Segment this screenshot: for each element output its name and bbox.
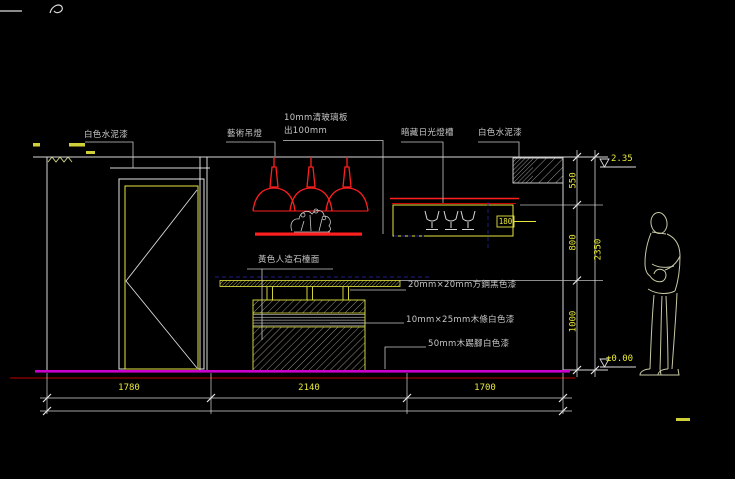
zigzag-mark: [48, 157, 72, 162]
countertop-hatch: [220, 281, 400, 287]
ornament-sketch: [291, 209, 331, 232]
floor-line: [35, 370, 570, 373]
dim-h-1780: 1780: [109, 384, 149, 393]
label-skirting: 50mm木踢腳白色漆: [428, 340, 509, 350]
drawing-geometry: [0, 0, 735, 479]
bottom-right-dash: [676, 418, 690, 421]
dim-v-550: 550: [570, 166, 579, 196]
back-bar-shelf: [393, 205, 536, 236]
dim-h-2140: 2140: [289, 384, 329, 393]
dim-trough-180: 180: [497, 218, 514, 226]
door: [119, 179, 204, 369]
beam-section-hatch: [513, 158, 563, 183]
counter-base-hatch: [254, 327, 365, 371]
counter-legs: [267, 287, 349, 300]
label-countertop: 黃色人造石檯面: [258, 256, 320, 266]
bar-counter: [220, 281, 400, 371]
glass-shelf-red-bar: [255, 233, 362, 236]
construction-lines: [215, 202, 488, 277]
dim-h-1700: 1700: [465, 384, 505, 393]
label-light-trough: 暗藏日光燈槽: [401, 129, 454, 139]
label-wood-strip: 10mm×25mm木條白色漆: [406, 316, 515, 326]
cad-canvas[interactable]: 白色水泥漆 藝術吊燈 10mm清玻璃板 出100mm 暗藏日光燈槽 白色水泥漆 …: [0, 0, 735, 479]
pendant-lamp: [253, 157, 295, 211]
label-glass-shelf-2: 出100mm: [284, 127, 327, 137]
wine-glass: [461, 211, 475, 230]
light-trough-red-lines: [390, 199, 519, 204]
wine-glass: [425, 211, 439, 230]
pendant-lamp: [290, 157, 332, 211]
label-glass-shelf-1: 10mm清玻璃板: [284, 114, 348, 124]
dim-v-800: 800: [570, 228, 579, 258]
label-wall-paint-left: 白色水泥漆: [84, 131, 128, 141]
counter-strip-band: [254, 313, 365, 327]
dim-v-total: 2350: [595, 232, 604, 268]
person-figure: [640, 211, 680, 375]
pendant-lamps: [253, 157, 368, 211]
level-floor-value: ±0.00: [606, 355, 633, 364]
wine-glass: [444, 211, 458, 230]
pendant-lamp: [326, 157, 368, 211]
label-steel-tube: 20mm×20mm方鋼黑色漆: [408, 281, 517, 291]
dim-v-1000: 1000: [570, 304, 579, 340]
counter-top-band: [254, 301, 365, 314]
door-frame-inner: [125, 186, 198, 369]
level-top-value: 2.35: [611, 155, 633, 164]
corner-mark: [0, 5, 62, 13]
door-swing-lines: [126, 190, 197, 368]
label-art-pendant: 藝術吊燈: [227, 130, 262, 140]
label-wall-paint-right: 白色水泥漆: [478, 129, 522, 139]
